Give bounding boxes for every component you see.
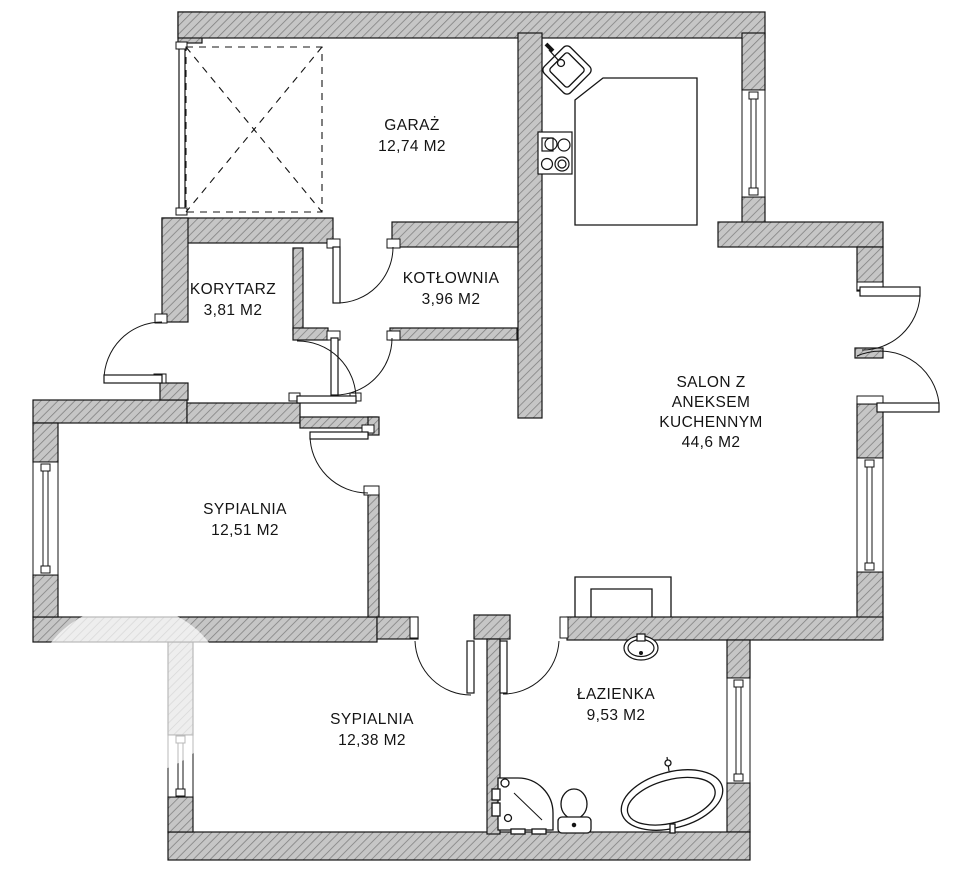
room-label-kotlownia: KOTŁOWNIA 3,96 M2 [403, 268, 500, 310]
fireplace-icon [575, 577, 671, 617]
window-salon-lower-right [857, 458, 883, 572]
room-name: SALON Z [659, 373, 763, 393]
room-label-garaz: GARAŻ 12,74 M2 [378, 115, 446, 157]
room-label-salon: SALON Z ANEKSEM KUCHENNYM 44,6 M2 [659, 373, 763, 453]
room-label-korytarz: KORYTARZ 3,81 M2 [190, 279, 276, 321]
window-salon-upper-right [742, 90, 765, 197]
door-kotlownia-hall [331, 338, 392, 395]
room-area: 3,96 M2 [403, 289, 500, 310]
room-name: KOTŁOWNIA [403, 268, 500, 289]
room-area: 12,38 M2 [330, 730, 414, 751]
room-name: SYPIALNIA [203, 499, 287, 520]
floor-plan-drawing [0, 0, 956, 869]
garage-door-swing-area [186, 47, 322, 212]
toilet-icon [558, 789, 591, 833]
room-label-sypialnia-1: SYPIALNIA 12,51 M2 [203, 499, 287, 541]
room-name: KORYTARZ [190, 279, 276, 300]
door-garaz-kotlownia [333, 247, 393, 303]
door-entrance [104, 322, 162, 383]
door-lazienka [500, 641, 559, 694]
shower-icon [492, 778, 553, 834]
window-lazienka [727, 678, 750, 783]
window-sypialnia-1 [33, 462, 58, 575]
room-label-lazienka: ŁAZIENKA 9,53 M2 [577, 684, 655, 726]
room-area: 9,53 M2 [577, 705, 655, 726]
door-sypialnia-2 [415, 641, 474, 695]
bathtub-icon [615, 757, 730, 841]
room-label-sypialnia-2: SYPIALNIA 12,38 M2 [330, 709, 414, 751]
room-name: ŁAZIENKA [577, 684, 655, 705]
floor-plan: GARAŻ 12,74 M2 KOTŁOWNIA 3,96 M2 KORYTAR… [0, 0, 956, 869]
room-name: KUCHENNYM [659, 413, 763, 433]
door-salon-east-upper [860, 287, 920, 350]
room-name: GARAŻ [378, 115, 446, 136]
room-area: 12,74 M2 [378, 136, 446, 157]
room-area: 3,81 M2 [190, 300, 276, 321]
room-area: 44,6 M2 [659, 433, 763, 453]
kitchen-sink-icon [541, 44, 593, 96]
door-sypialnia-1 [310, 432, 368, 493]
garage-gate [176, 42, 187, 215]
cooktop-icon [538, 132, 572, 174]
room-name: ANEKSEM [659, 393, 763, 413]
room-name: SYPIALNIA [330, 709, 414, 730]
kitchen-counter [575, 78, 697, 225]
watermark [35, 605, 225, 775]
room-area: 12,51 M2 [203, 520, 287, 541]
